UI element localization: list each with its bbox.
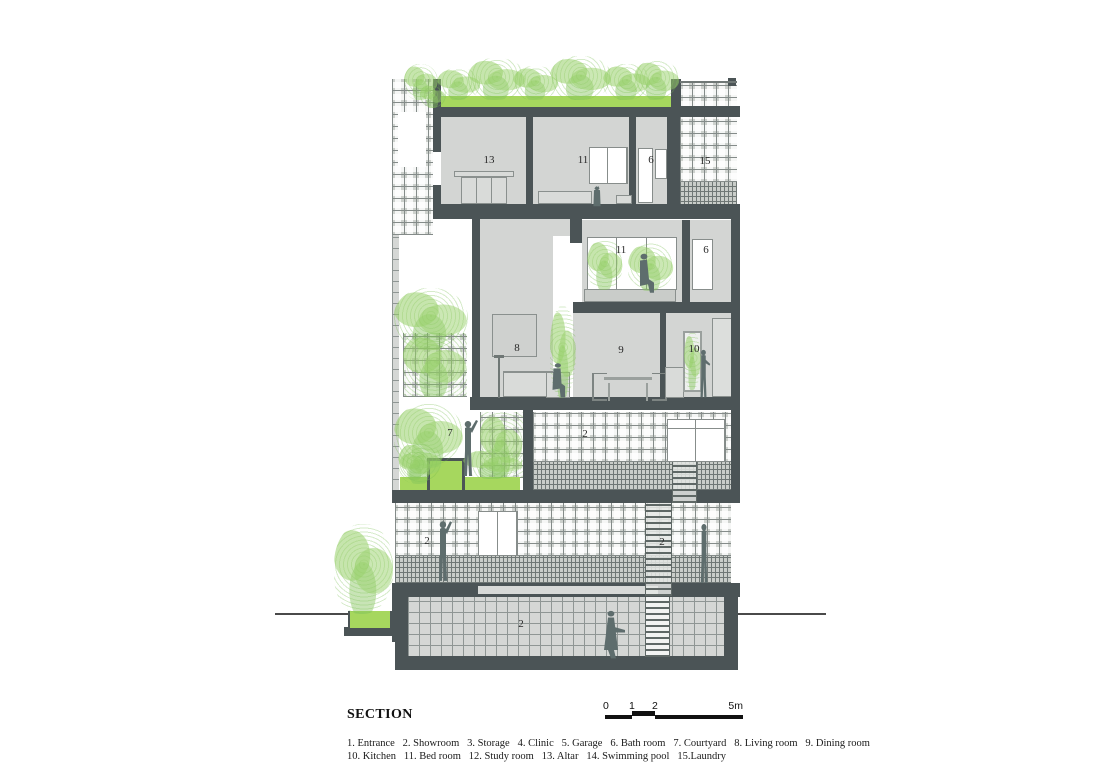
person-seated-bedroom-mid bbox=[634, 252, 654, 303]
roof-slab bbox=[433, 106, 740, 117]
person-seated-living bbox=[548, 362, 566, 400]
beam-bedroom-mid bbox=[570, 213, 582, 243]
label-laundry: 15 bbox=[700, 155, 711, 167]
label-bedroom-upper: 11 bbox=[578, 154, 589, 166]
label-kitchen: 10 bbox=[689, 343, 700, 355]
basement-slab-bottom bbox=[395, 656, 738, 670]
section-drawing-page: 13 11 6 15 11 6 8 9 10 7 2 2 2 2 SECTION… bbox=[0, 0, 1100, 778]
ground-line-right bbox=[738, 613, 826, 615]
label-dining: 9 bbox=[618, 344, 624, 356]
person-showroom-ground-left bbox=[434, 518, 454, 583]
wall-courtyard-right bbox=[523, 404, 533, 490]
drawing-title: SECTION bbox=[347, 707, 413, 723]
ground-line-left bbox=[275, 613, 348, 615]
window-bedroom-upper-mullion bbox=[607, 147, 608, 184]
label-bathroom-upper: 6 bbox=[648, 154, 654, 166]
window-showroom-ground bbox=[478, 511, 518, 556]
slab-floor3-right bbox=[573, 302, 740, 313]
left-facade-opening bbox=[398, 112, 426, 167]
scale-bar-seg-1 bbox=[605, 715, 632, 719]
legend-line-2: 10. Kitchen 11. Bed room 12. Study room … bbox=[347, 750, 726, 763]
kitchen-counter bbox=[665, 367, 684, 398]
roof-railing-line bbox=[680, 81, 737, 83]
label-bathroom-mid: 6 bbox=[703, 244, 709, 256]
label-altar: 13 bbox=[484, 154, 495, 166]
showroom-level2-railing bbox=[533, 462, 731, 490]
scale-bar-seg-2 bbox=[632, 711, 655, 715]
scale-tick-5m: 5m bbox=[728, 700, 743, 712]
scale-bar-seg-3 bbox=[655, 715, 743, 719]
street-planter bbox=[348, 611, 392, 630]
altar-table-body bbox=[461, 177, 507, 204]
window-bedroom-upper bbox=[589, 147, 628, 184]
scale-tick-0: 0 bbox=[603, 700, 609, 712]
right-outer-wall bbox=[731, 204, 740, 503]
wall-bath-right-upper bbox=[667, 117, 680, 205]
label-showroom-ground-left: 2 bbox=[424, 535, 430, 547]
label-living: 8 bbox=[514, 342, 520, 354]
vine-on-screen-upper bbox=[403, 333, 467, 397]
person-courtyard bbox=[459, 418, 479, 478]
side-table-upper bbox=[616, 195, 632, 204]
street-tree bbox=[334, 524, 394, 614]
dining-chair-left bbox=[592, 373, 607, 401]
person-standing-kitchen bbox=[696, 349, 711, 399]
kitchen-cabinets bbox=[712, 318, 732, 397]
stairs-level2 bbox=[672, 462, 697, 503]
person-showroom-ground-right bbox=[696, 523, 712, 585]
laundry-screen-wall bbox=[680, 82, 737, 182]
legend-line-1: 1. Entrance 2. Showroom 3. Storage 4. Cl… bbox=[347, 737, 870, 750]
dining-table bbox=[604, 377, 652, 401]
cabinet-bathroom-upper bbox=[655, 149, 667, 179]
label-showroom-level2: 2 bbox=[582, 428, 588, 440]
window-ground-mullion bbox=[497, 511, 498, 556]
left-wall-window bbox=[433, 152, 441, 185]
window-showroom-level2 bbox=[667, 419, 725, 462]
wall-bedroom-bath-upper bbox=[629, 117, 636, 205]
bed-upper bbox=[538, 191, 592, 204]
stairs-basement bbox=[645, 597, 670, 657]
person-child-bedroom-upper bbox=[591, 186, 603, 207]
basement-wall-grid bbox=[408, 597, 724, 657]
left-wall-living bbox=[472, 213, 480, 403]
wall-bedroom-bath-mid bbox=[682, 220, 690, 303]
label-showroom-basement: 2 bbox=[518, 618, 524, 630]
stairs-ground bbox=[645, 503, 672, 596]
label-courtyard: 7 bbox=[447, 427, 453, 439]
wall-altar-bedroom bbox=[526, 117, 533, 205]
slab-ground-inset bbox=[478, 586, 658, 594]
label-showroom-ground-right: 2 bbox=[659, 536, 665, 548]
window-bench-bedroom-mid bbox=[584, 289, 676, 302]
label-bedroom-mid: 11 bbox=[616, 244, 627, 256]
scale-bar: 0 1 2 5m bbox=[605, 700, 743, 720]
person-walking-basement bbox=[598, 610, 626, 660]
